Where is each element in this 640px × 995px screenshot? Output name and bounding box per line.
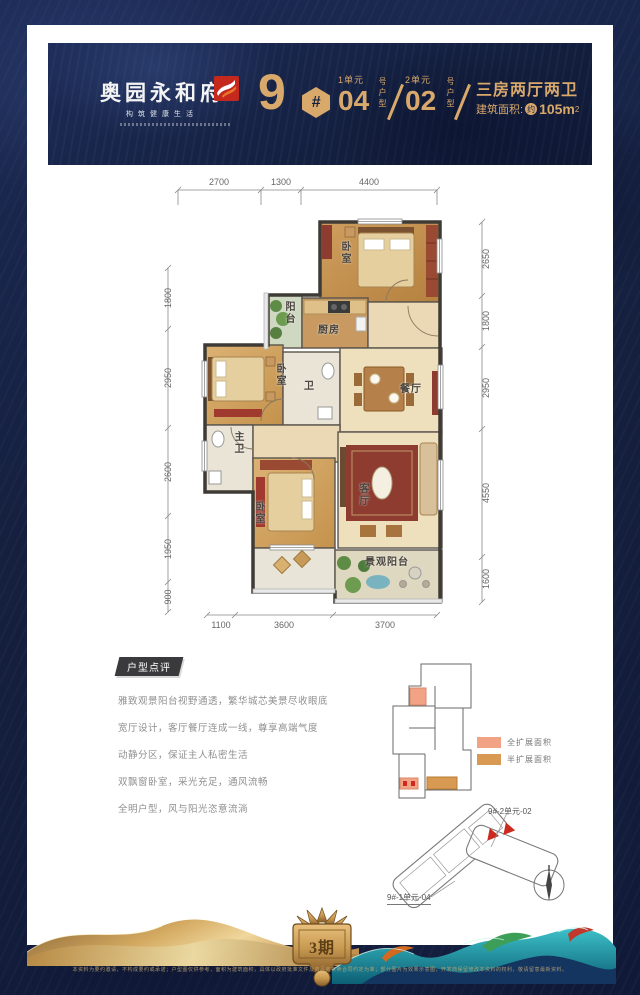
dim-top-3: 4400: [344, 177, 394, 187]
room-corridor: [253, 425, 340, 462]
dim-top-1: 2700: [194, 177, 244, 187]
review-line-1: 雅致观景阳台视野通透，繁华城芯美景尽收眼底: [118, 693, 388, 707]
dim-left-2: 2950: [163, 356, 173, 400]
unit-2-group: 2单元 02: [405, 73, 436, 115]
room-entry: [368, 302, 440, 348]
unit-1-group: 1单元 04: [338, 73, 369, 115]
unit-2-number: 02: [405, 87, 436, 115]
brand-logo-icon: [214, 76, 239, 101]
area-line: 建筑面积: 约 105m 2: [476, 101, 579, 117]
area-value: 105m: [539, 101, 575, 117]
dim-right-4: 4550: [481, 471, 491, 515]
review-line-2: 宽厅设计，客厅餐厅连成一线，尊享高端气度: [118, 720, 388, 734]
label-bedroom-mid: 卧室: [272, 363, 287, 387]
dim-bottom-1: 1100: [196, 620, 246, 630]
legend-row-half: 半扩展面积: [477, 754, 552, 765]
phase-badge: 3期: [287, 906, 357, 990]
floorplan-drawing: [132, 165, 512, 650]
hash-hexagon: #: [302, 87, 330, 118]
legend-label-full: 全扩展面积: [507, 737, 552, 748]
legend-label-half: 半扩展面积: [507, 754, 552, 765]
dim-left-5: 900: [163, 575, 173, 619]
building-number: 9: [258, 67, 286, 117]
unit-1-number: 04: [338, 87, 369, 115]
approx-circle-icon: 约: [525, 103, 537, 115]
teal-wave-decor: [332, 918, 616, 984]
separator-slash: [387, 84, 404, 120]
poster-page: 奥园永和府 构筑健康生活 9 # 1单元 04 号户型 2单元: [0, 0, 640, 995]
site-unit2-label: 9#-2单元-02: [488, 806, 532, 817]
label-bedroom-top: 卧室: [337, 241, 352, 265]
hash-symbol: #: [312, 94, 321, 112]
review-line-5: 全明户型，风与阳光恣意流淌: [118, 801, 388, 815]
review-line-4: 双飘窗卧室，采光充足，通风流畅: [118, 774, 388, 788]
dim-right-2: 1800: [481, 299, 491, 343]
brand-logo-text: 奥园永和府: [100, 77, 225, 107]
header-panel: 奥园永和府 构筑健康生活 9 # 1单元 04 号户型 2单元: [48, 43, 592, 165]
review-badge-text: 户型点评: [127, 659, 171, 674]
review-line-3: 动静分区，保证主人私密生活: [118, 747, 388, 761]
white-card: 奥园永和府 构筑健康生活 9 # 1单元 04 号户型 2单元: [27, 25, 613, 945]
label-living: 客厅: [355, 483, 370, 507]
dim-left-4: 1950: [163, 527, 173, 571]
legend-swatch-full: [477, 737, 501, 748]
dim-right-5: 1600: [481, 557, 491, 601]
legend-row-full: 全扩展面积: [477, 737, 552, 748]
phase-badge-text: 3期: [287, 934, 357, 958]
dim-left-1: 1800: [163, 276, 173, 320]
area-label: 建筑面积:: [476, 101, 523, 117]
disclaimer-text: 本资料为要约邀请，不构成要约或承诺；户型图仅供参考，面积为建筑面积，具体以政府批…: [53, 966, 587, 973]
label-balcony-top: 阳台: [281, 301, 296, 325]
dim-bottom-2: 3600: [259, 620, 309, 630]
dim-bottom-3: 3700: [360, 620, 410, 630]
site-unit1-label: 9#-1单元-04: [387, 892, 431, 905]
room-balcony-small: [253, 548, 335, 592]
area-exponent: 2: [575, 105, 579, 114]
floorplan: 2700 1300 4400 1100 3600 3700 1800 2950 …: [132, 165, 512, 650]
layout-type-text: 三房两厅两卫: [476, 76, 578, 100]
legend-swatch-half: [477, 754, 501, 765]
label-view-balcony: 景观阳台: [365, 553, 409, 568]
expansion-patch-full-top: [410, 688, 426, 705]
unit-2-suffix: 号户型: [446, 77, 454, 110]
label-bedroom-bottom: 卧室: [251, 501, 266, 525]
dim-left-3: 2600: [163, 450, 173, 494]
label-dining: 餐厅: [400, 380, 422, 395]
dim-right-3: 2950: [481, 366, 491, 410]
brand-subline-decor: [120, 123, 232, 126]
label-master-bath: 主卫: [230, 431, 245, 455]
label-bath: 卫: [304, 377, 315, 392]
review-badge: 户型点评: [115, 657, 184, 676]
dim-right-1: 2650: [481, 237, 491, 281]
separator-slash: [454, 84, 471, 120]
dim-top-2: 1300: [256, 177, 306, 187]
unit-1-suffix: 号户型: [378, 77, 386, 110]
label-kitchen: 厨房: [318, 321, 340, 336]
brand-slogan: 构筑健康生活: [126, 109, 198, 119]
